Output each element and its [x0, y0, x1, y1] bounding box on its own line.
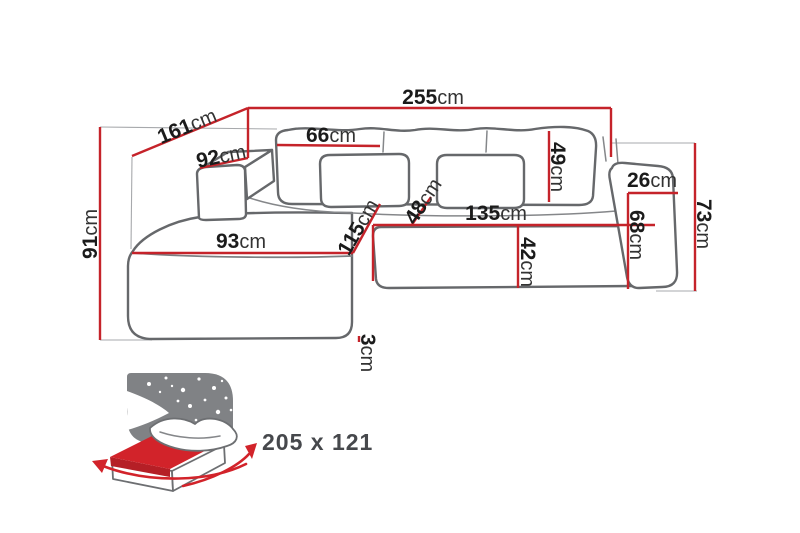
dim-label-26: 26cm — [627, 169, 677, 192]
dim-label-3: 3cm — [356, 334, 379, 372]
sofa-dimension-diagram: 255cm 161cm 91cm 92cm 66cm 49cm 26cm 68c… — [0, 0, 800, 533]
dim-label-49: 49cm — [546, 142, 569, 192]
dim-label-161: 161cm — [154, 104, 220, 149]
left-armrest-front — [197, 165, 246, 220]
back-cushion-gap-2 — [486, 131, 487, 152]
seat-front-panel — [373, 226, 653, 288]
sofa-bed-icon — [92, 373, 257, 491]
dim-label-255: 255cm — [402, 86, 464, 109]
dim-label-93: 93cm — [216, 230, 266, 253]
dim-label-73: 73cm — [692, 199, 715, 249]
dim-label-66: 66cm — [306, 124, 356, 147]
dim-label-42: 42cm — [516, 237, 539, 287]
dim-label-68: 68cm — [625, 210, 648, 260]
diagram-svg: 255cm 161cm 91cm 92cm 66cm 49cm 26cm 68c… — [0, 0, 800, 533]
sleeping-area-size: 205 x 121 — [262, 429, 373, 455]
back-cushion-gap-1 — [383, 132, 384, 152]
armrest-back-seam-1 — [603, 137, 606, 161]
dim-label-91: 91cm — [79, 209, 102, 259]
dim-label-135: 135cm — [465, 202, 527, 225]
extension-chaise-corner — [131, 157, 132, 249]
lumbar-cushion-right — [437, 155, 524, 208]
